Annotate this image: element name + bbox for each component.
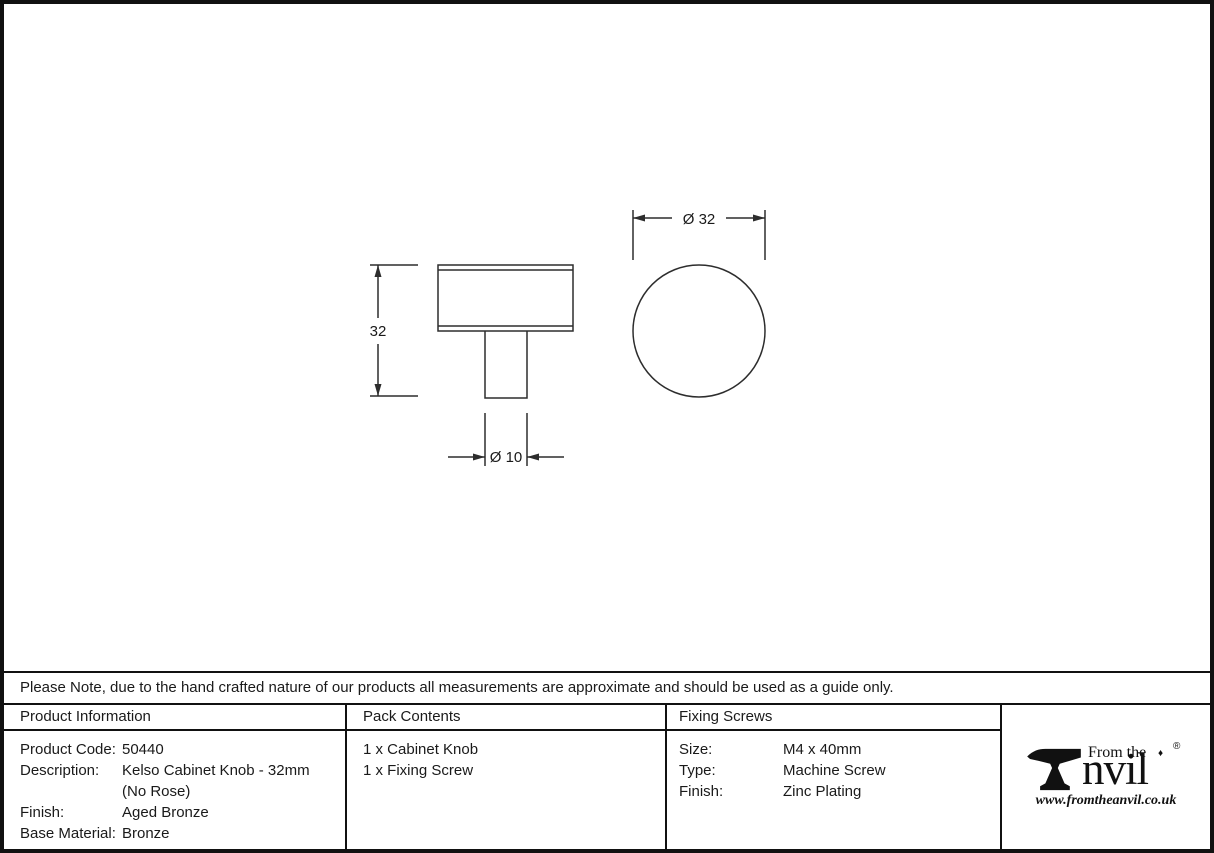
shaft-diameter-label: Ø 10 bbox=[490, 449, 523, 466]
product-information-body: Product Code: 50440 Description: Kelso C… bbox=[4, 731, 345, 844]
pack-item: 1 x Cabinet Knob bbox=[363, 739, 665, 760]
measurement-note-row: Please Note, due to the hand crafted nat… bbox=[4, 671, 1210, 705]
side-view: 32 Ø 10 bbox=[370, 265, 573, 466]
field-value: 50440 bbox=[122, 739, 345, 760]
pack-contents-header: Pack Contents bbox=[347, 705, 665, 731]
pack-contents-column: Pack Contents 1 x Cabinet Knob 1 x Fixin… bbox=[345, 705, 665, 849]
knob-face-circle bbox=[633, 265, 765, 397]
spec-sheet-page: 32 Ø 10 bbox=[0, 0, 1214, 853]
pack-item: 1 x Fixing Screw bbox=[363, 760, 665, 781]
fixing-screws-body: Size: M4 x 40mm Type: Machine Screw Fini… bbox=[667, 731, 1000, 802]
technical-drawing-area: 32 Ø 10 bbox=[4, 4, 1210, 671]
field-label: Size: bbox=[679, 739, 783, 760]
field-value: Kelso Cabinet Knob - 32mm (No Rose) bbox=[122, 760, 345, 802]
side-height-label: 32 bbox=[370, 323, 387, 340]
field-value: M4 x 40mm bbox=[783, 739, 1000, 760]
knob-shaft-outline bbox=[485, 331, 527, 398]
arrowhead-left bbox=[633, 215, 645, 222]
pack-contents-body: 1 x Cabinet Knob 1 x Fixing Screw bbox=[347, 731, 665, 781]
fixing-screws-header: Fixing Screws bbox=[667, 705, 1000, 731]
product-information-column: Product Information Product Code: 50440 … bbox=[4, 705, 345, 849]
field-label: Type: bbox=[679, 760, 783, 781]
logo-wordmark: nvil bbox=[1082, 747, 1148, 791]
arrowhead-right bbox=[753, 215, 765, 222]
front-view: Ø 32 bbox=[633, 210, 765, 397]
field-label: Finish: bbox=[679, 781, 783, 802]
field-label: Finish: bbox=[20, 802, 122, 823]
arrowhead-down bbox=[375, 384, 382, 396]
field-label: Base Material: bbox=[20, 823, 122, 844]
knob-head-outline bbox=[438, 265, 573, 331]
anvil-icon bbox=[1025, 746, 1083, 792]
fixing-screws-column: Fixing Screws Size: M4 x 40mm Type: Mach… bbox=[665, 705, 1000, 849]
arrowhead-right bbox=[473, 454, 485, 461]
field-value: Zinc Plating bbox=[783, 781, 1000, 802]
logo-website-url: www.fromtheanvil.co.uk bbox=[1025, 793, 1187, 809]
diamond-icon: ♦ bbox=[1158, 748, 1163, 759]
brand-logo-cell: From the ♦ nvil ® www.fromtheanvil.co.uk bbox=[1000, 705, 1210, 849]
measurement-note: Please Note, due to the hand crafted nat… bbox=[20, 679, 894, 696]
anvil-logo: From the ♦ nvil ® www.fromtheanvil.co.uk bbox=[1025, 743, 1187, 811]
info-table: Product Information Product Code: 50440 … bbox=[4, 705, 1210, 849]
field-value: Aged Bronze bbox=[122, 802, 345, 823]
field-label: Description: bbox=[20, 760, 122, 802]
product-information-header: Product Information bbox=[4, 705, 345, 731]
field-label: Product Code: bbox=[20, 739, 122, 760]
field-value: Machine Screw bbox=[783, 760, 1000, 781]
arrowhead-up bbox=[375, 265, 382, 277]
knob-diameter-label: Ø 32 bbox=[683, 211, 716, 228]
technical-drawing: 32 Ø 10 bbox=[4, 4, 1210, 671]
field-value: Bronze bbox=[122, 823, 345, 844]
registered-trademark-icon: ® bbox=[1173, 741, 1180, 752]
arrowhead-left bbox=[527, 454, 539, 461]
